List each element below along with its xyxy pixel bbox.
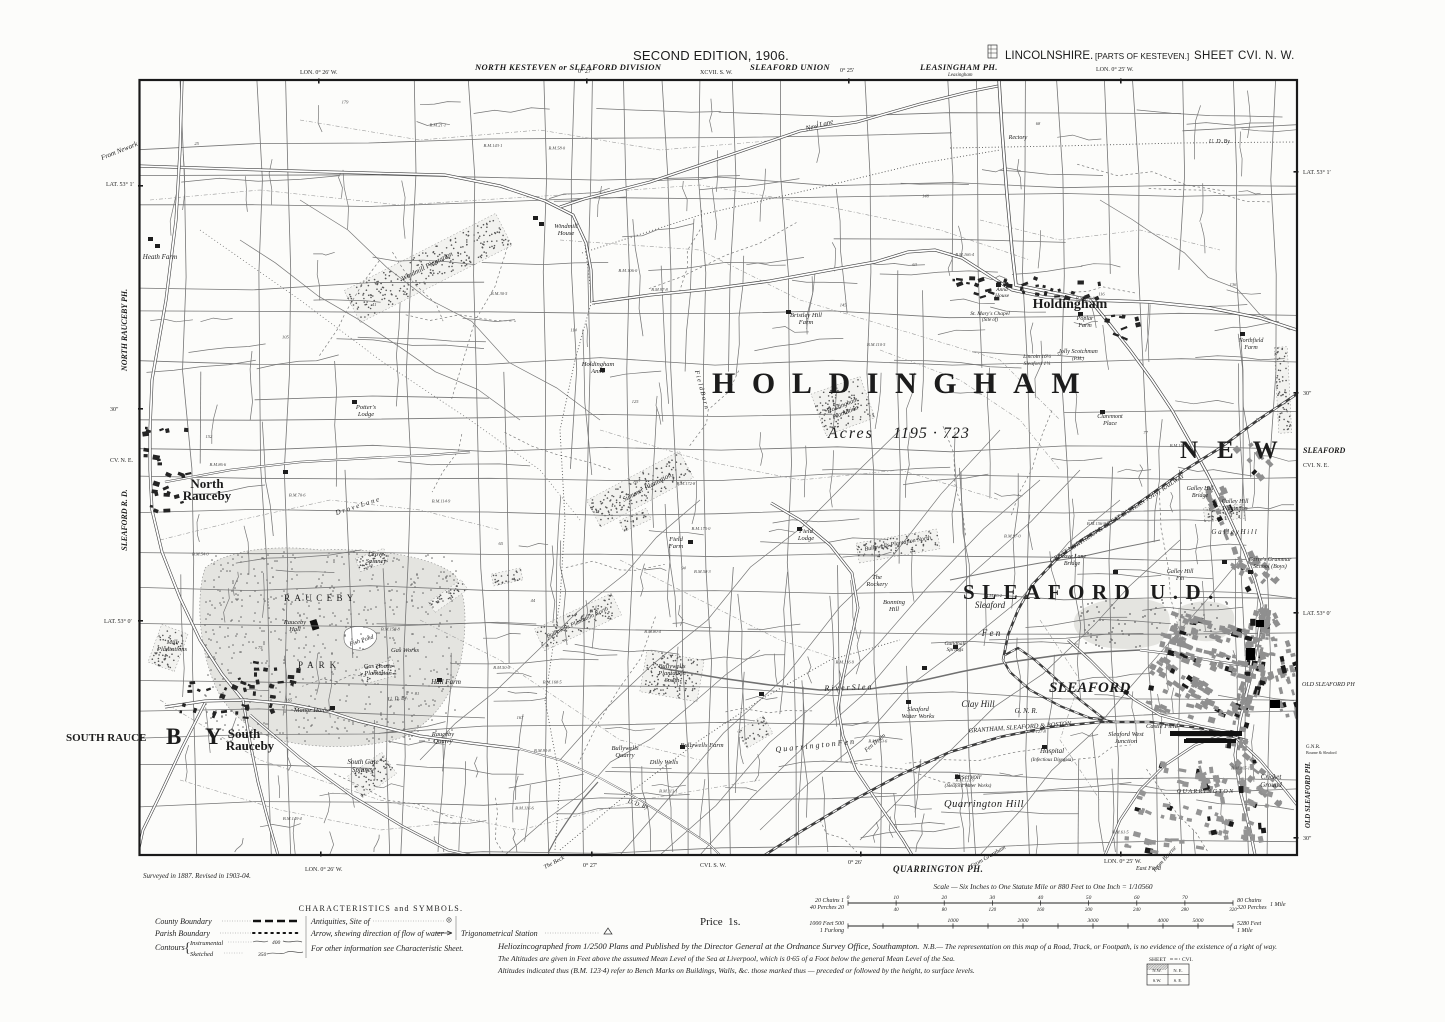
svg-text:LON. 0° 25′ W.: LON. 0° 25′ W.	[1096, 66, 1134, 73]
svg-text:Farm: Farm	[1243, 345, 1258, 351]
svg-text:B.M.110·5: B.M.110·5	[867, 342, 886, 347]
svg-text:Quarrington Hill: Quarrington Hill	[944, 799, 1024, 810]
svg-text:1000: 1000	[948, 918, 959, 924]
svg-text:Bristley Hill: Bristley Hill	[790, 312, 822, 319]
svg-text:Galley Hill: Galley Hill	[1167, 569, 1194, 575]
svg-text:75: 75	[258, 645, 263, 650]
svg-text:B.M.91·8: B.M.91·8	[534, 748, 551, 753]
svg-text:OLD SLEAFORD PH.: OLD SLEAFORD PH.	[1304, 762, 1312, 829]
svg-text:53: 53	[1057, 352, 1062, 357]
svg-text:Farm: Farm	[1077, 323, 1092, 329]
svg-text:Manor House: Manor House	[293, 707, 330, 714]
svg-text:The Altitudes are given in Fee: The Altitudes are given in Feet above th…	[498, 954, 955, 963]
svg-text:B.M.172·8: B.M.172·8	[676, 481, 696, 486]
svg-text:B.M.158·8: B.M.158·8	[381, 627, 401, 632]
svg-text:125: 125	[632, 399, 640, 404]
svg-text:[PARTS OF KESTEVEN.]: [PARTS OF KESTEVEN.]	[1095, 51, 1189, 61]
svg-text:Q U A R R I N G T O N: Q U A R R I N G T O N	[1177, 789, 1234, 795]
svg-text:B.M.116·9: B.M.116·9	[835, 660, 854, 665]
svg-text:Sleaford 1¼: Sleaford 1¼	[1024, 360, 1051, 367]
svg-text:320 Perches: 320 Perches	[1236, 905, 1267, 911]
svg-text:B.M.156·9: B.M.156·9	[1087, 521, 1107, 526]
svg-text:Bourne & Sleaford: Bourne & Sleaford	[1306, 750, 1336, 755]
svg-text:B.M.97·0: B.M.97·0	[1004, 533, 1021, 538]
svg-text:South Gate: South Gate	[347, 758, 378, 766]
svg-text:HOLDINGHAM: HOLDINGHAM	[712, 367, 1096, 400]
svg-text:0° 27′: 0° 27′	[578, 68, 593, 75]
svg-text:68: 68	[1036, 121, 1041, 126]
svg-text:Dilly Wells: Dilly Wells	[649, 759, 679, 766]
svg-text:N.W.: N.W.	[1152, 968, 1161, 973]
svg-text:(P.H.): (P.H.)	[1072, 357, 1084, 362]
svg-text:Surveyed in 1887. Revised i: Surveyed in 1887. Revised in 1903-04.	[143, 872, 251, 880]
svg-text:LAT. 53° 1′: LAT. 53° 1′	[1303, 169, 1331, 176]
svg-text:Springs: Springs	[947, 647, 964, 653]
svg-text:Farm: Farm	[798, 319, 814, 326]
svg-text:S. E.: S. E.	[1174, 978, 1183, 983]
svg-text:Rectory: Rectory	[1008, 135, 1028, 141]
svg-text:Lincoln 16¼: Lincoln 16¼	[1022, 354, 1051, 360]
svg-text:Bridge: Bridge	[1064, 561, 1081, 567]
svg-text:Hall: Hall	[288, 626, 301, 633]
svg-text:152: 152	[206, 434, 214, 439]
svg-text:Spinney: Spinney	[352, 766, 375, 774]
svg-text:Trigonometrical Station: Trigonometrical Station	[461, 929, 538, 938]
svg-text:SOUTH RAUCE: SOUTH RAUCE	[66, 732, 146, 744]
svg-text:Galley Hill: Galley Hill	[1187, 486, 1214, 492]
svg-text:80: 80	[942, 908, 948, 913]
svg-text:B.M.36·2: B.M.36·2	[985, 593, 1002, 598]
svg-text:G. N. R.: G. N. R.	[1015, 707, 1038, 715]
svg-text:Quarry: Quarry	[433, 738, 452, 745]
svg-text:136: 136	[1230, 282, 1238, 287]
svg-text:Hospital: Hospital	[1039, 747, 1064, 755]
svg-text:Rauceby: Rauceby	[183, 488, 232, 503]
svg-text:0: 0	[847, 895, 850, 901]
svg-text:0° 26′: 0° 26′	[848, 859, 863, 866]
svg-text:5000: 5000	[1193, 918, 1204, 924]
svg-text:B.M.58·3: B.M.58·3	[694, 569, 711, 574]
svg-text:B.M.114·9: B.M.114·9	[432, 499, 451, 504]
svg-text:1s.: 1s.	[728, 916, 741, 928]
svg-text:B.M.168·5: B.M.168·5	[543, 679, 563, 684]
svg-text:167: 167	[517, 715, 525, 720]
svg-text:40: 40	[1038, 894, 1044, 901]
svg-text:Rauceby: Rauceby	[283, 619, 306, 626]
svg-text:N.B.— The representation on th: N.B.— The representation on this map of …	[922, 942, 1277, 951]
svg-text:25: 25	[194, 141, 199, 146]
svg-text:Holdingham: Holdingham	[581, 361, 615, 368]
svg-text:30″: 30″	[110, 407, 119, 413]
svg-text:70: 70	[1182, 895, 1188, 901]
svg-text:B.M.54·0: B.M.54·0	[192, 552, 209, 557]
svg-text:120: 120	[989, 908, 997, 913]
svg-text:Plantation: Plantation	[1221, 506, 1247, 512]
svg-text:Acres: Acres	[827, 425, 874, 442]
svg-text:CVI.: CVI.	[1182, 957, 1193, 963]
svg-text:Holdingham: Holdingham	[1033, 297, 1108, 312]
svg-text:B.M.143·1: B.M.143·1	[483, 143, 502, 148]
svg-text:1195 · 723: 1195 · 723	[893, 425, 970, 442]
svg-text:Castle Field: Castle Field	[1146, 723, 1179, 730]
svg-text:Arrow, shewing direction of fl: Arrow, shewing direction of flow of wate…	[310, 929, 445, 938]
svg-text:Cricket: Cricket	[1261, 773, 1283, 781]
svg-text:N. E.: N. E.	[1173, 968, 1182, 973]
svg-text:B.M.116·6: B.M.116·6	[515, 805, 534, 810]
svg-text:B: B	[166, 724, 181, 749]
svg-text:CV. N. E.: CV. N. E.	[110, 458, 134, 464]
svg-text:CVI. N. E.: CVI. N. E.	[1303, 463, 1329, 469]
svg-text:LON. 0° 26′ W.: LON. 0° 26′ W.	[300, 69, 338, 76]
svg-text:Rockery: Rockery	[865, 581, 887, 588]
svg-text:Bonning: Bonning	[883, 599, 906, 606]
svg-text:3000: 3000	[1087, 918, 1099, 924]
svg-text:SLEAFORD R. D.: SLEAFORD R. D.	[120, 489, 129, 550]
svg-text:OLD SLEAFORD PH: OLD SLEAFORD PH	[1302, 682, 1355, 688]
svg-text:SECOND EDITION, 1906.: SECOND EDITION, 1906.	[633, 48, 789, 63]
svg-text:Instrumental: Instrumental	[189, 940, 223, 947]
svg-text:XCVII. S. W.: XCVII. S. W.	[700, 70, 733, 76]
svg-text:B.M.106·0: B.M.106·0	[618, 268, 638, 273]
svg-text:Junction: Junction	[1115, 738, 1137, 745]
svg-text:SHEET: SHEET	[1194, 50, 1234, 62]
svg-text:0° 25′: 0° 25′	[840, 67, 855, 74]
svg-text:30″: 30″	[1303, 391, 1312, 397]
svg-text:Sketched: Sketched	[190, 951, 214, 958]
svg-text:B.M.30·5: B.M.30·5	[491, 291, 508, 296]
svg-text:B.M.70·6: B.M.70·6	[289, 492, 306, 497]
svg-text:Y: Y	[205, 724, 222, 749]
svg-text:B.M.50·0: B.M.50·0	[493, 665, 510, 670]
svg-text:Fm: Fm	[1175, 576, 1185, 582]
svg-text:4000: 4000	[1158, 917, 1169, 924]
svg-text:Clay Hill: Clay Hill	[961, 699, 995, 709]
svg-text:B.M.153·6: B.M.153·6	[868, 738, 888, 743]
svg-text:60: 60	[1134, 895, 1140, 901]
svg-text:LEASINGHAM PH.: LEASINGHAM PH.	[919, 62, 998, 72]
svg-text:Gas House: Gas House	[364, 663, 393, 670]
svg-text:County Boundary: County Boundary	[155, 917, 212, 926]
svg-text:Lodge: Lodge	[357, 411, 374, 418]
svg-text:Place: Place	[1102, 421, 1117, 427]
svg-text:44: 44	[531, 598, 536, 603]
svg-text:Bridge: Bridge	[1192, 493, 1209, 499]
svg-text:Field: Field	[668, 536, 683, 543]
svg-text:30″: 30″	[1303, 836, 1312, 842]
svg-text:Scale — Six Inches to One Stat: Scale — Six Inches to One Statute Mile o…	[933, 882, 1152, 891]
svg-text:B.M.97·8: B.M.97·8	[651, 287, 668, 292]
svg-text:CVI.: CVI.	[1238, 50, 1262, 62]
svg-text:148: 148	[922, 193, 930, 198]
svg-text:400: 400	[272, 939, 281, 946]
svg-text:RAUCEBY: RAUCEBY	[284, 593, 358, 603]
svg-text:Plantation: Plantation	[363, 670, 391, 677]
svg-text:{: {	[184, 941, 191, 956]
svg-text:160: 160	[1037, 908, 1045, 913]
svg-text:B.M.166·4: B.M.166·4	[955, 252, 975, 257]
svg-text:114: 114	[570, 327, 577, 332]
svg-text:280: 280	[1181, 908, 1189, 913]
svg-text:B.M.113·1: B.M.113·1	[659, 788, 678, 793]
svg-text:1 Mile: 1 Mile	[1237, 928, 1253, 934]
svg-text:B.M.175·0: B.M.175·0	[691, 526, 711, 531]
svg-text:63: 63	[912, 262, 917, 267]
svg-text:Heliozincographed from 1/250: Heliozincographed from 1/2500 Plans and …	[497, 941, 919, 951]
svg-text:For other information see Char: For other information see Characteristic…	[310, 944, 463, 953]
svg-text:N. W.: N. W.	[1265, 50, 1295, 62]
svg-text:0° 27′: 0° 27′	[583, 862, 598, 869]
svg-text:B.M.161·3: B.M.161·3	[1170, 443, 1190, 448]
svg-text:Water Works: Water Works	[902, 713, 935, 720]
svg-text:U. D. By.: U. D. By.	[1209, 139, 1231, 145]
svg-text:200: 200	[1085, 908, 1093, 913]
svg-text:Leasingham: Leasingham	[947, 73, 973, 78]
svg-text:LAT. 53° 0′: LAT. 53° 0′	[1303, 610, 1331, 617]
svg-text:Drove: Drove	[367, 551, 384, 558]
svg-text:94: 94	[681, 565, 686, 570]
svg-text:Gas Works: Gas Works	[391, 647, 420, 654]
svg-text:Price: Price	[700, 916, 723, 928]
svg-text:Bullywells Farm: Bullywells Farm	[680, 742, 723, 749]
svg-text:Parish Boundary: Parish Boundary	[154, 929, 210, 938]
svg-text:B.M.21·1: B.M.21·1	[430, 123, 447, 128]
svg-text:116: 116	[1098, 291, 1105, 296]
svg-text:Altitudes indicated thus (B.M.: Altitudes indicated thus (B.M. 123·4) re…	[497, 966, 975, 975]
svg-text:NORTH RAUCEBY PH.: NORTH RAUCEBY PH.	[120, 289, 129, 372]
svg-text:81: 81	[415, 691, 420, 696]
svg-text:B.M.172·6: B.M.172·6	[1076, 295, 1096, 300]
svg-text:B.M.86·6: B.M.86·6	[209, 462, 226, 467]
svg-text:Rauceby: Rauceby	[226, 738, 275, 753]
svg-text:Hill: Hill	[888, 606, 899, 613]
svg-text:5280 Feet: 5280 Feet	[1237, 921, 1261, 927]
svg-text:(Site of): (Site of)	[982, 318, 998, 323]
svg-text:B.M.58·0: B.M.58·0	[548, 145, 565, 150]
svg-text:40: 40	[894, 908, 900, 913]
svg-text:House: House	[994, 293, 1010, 299]
svg-text:(Infectious Diseases): (Infectious Diseases)	[1031, 758, 1073, 763]
svg-text:House: House	[557, 230, 575, 237]
svg-text:20: 20	[942, 895, 948, 901]
svg-text:S.W.: S.W.	[1153, 978, 1162, 983]
svg-text:R i v e r S l e a: R i v e r S l e a	[823, 682, 871, 693]
svg-text:SLEAFORD: SLEAFORD	[1049, 680, 1131, 696]
svg-text:NORTH KESTEVEN or SLEAFORD DIV: NORTH KESTEVEN or SLEAFORD DIVISION	[474, 62, 662, 72]
svg-text:LAT. 53° 0′: LAT. 53° 0′	[104, 618, 132, 625]
svg-text:1 Mile: 1 Mile	[1270, 902, 1286, 908]
svg-text:89: 89	[633, 480, 638, 485]
svg-text:350: 350	[257, 952, 267, 958]
svg-text:St. Mary's Chapel: St. Mary's Chapel	[970, 311, 1010, 317]
svg-text:NEW: NEW	[1180, 437, 1297, 464]
svg-text:Plantation: Plantation	[657, 670, 685, 677]
svg-text:Hall Farm: Hall Farm	[430, 678, 461, 686]
svg-text:Anna: Anna	[590, 368, 605, 375]
svg-text:50: 50	[1086, 895, 1092, 901]
svg-text:Mill: Mill	[166, 639, 178, 646]
svg-text:South: South	[665, 677, 680, 684]
svg-text:B.M.121·9: B.M.121·9	[956, 778, 976, 783]
svg-text:Contours: Contours	[155, 943, 185, 952]
svg-text:Antiquities, Site of: Antiquities, Site of	[310, 917, 372, 926]
svg-text:40 Perches 20: 40 Perches 20	[810, 904, 844, 911]
svg-text:76: 76	[1256, 417, 1261, 422]
svg-text:10: 10	[893, 895, 899, 901]
svg-text:20 Chains 1: 20 Chains 1	[815, 898, 844, 904]
svg-text:LON. 0° 25′ W.: LON. 0° 25′ W.	[1104, 858, 1142, 865]
svg-text:Bullywells: Bullywells	[658, 663, 686, 670]
svg-text:Sleaford West: Sleaford West	[1108, 731, 1144, 738]
svg-text:Galley Hill: Galley Hill	[1222, 499, 1249, 505]
svg-text:Bullywells: Bullywells	[611, 745, 639, 752]
svg-text:LON. 0° 26′ W.: LON. 0° 26′ W.	[305, 866, 343, 873]
svg-text:Windmill: Windmill	[554, 223, 578, 230]
svg-text:Poplar: Poplar	[1076, 316, 1094, 322]
svg-text:Lodge: Lodge	[797, 535, 814, 542]
svg-text:1 Furlong: 1 Furlong	[820, 928, 844, 934]
svg-text:77: 77	[1143, 430, 1148, 435]
svg-text:240: 240	[1133, 908, 1141, 913]
svg-text:105: 105	[282, 334, 290, 339]
svg-text:B.M.127·8: B.M.127·8	[1027, 729, 1047, 734]
svg-text:Carre's Grammar: Carre's Grammar	[1249, 557, 1293, 563]
svg-text:Rauceby: Rauceby	[431, 731, 454, 738]
svg-text:LAT. 53° 1′: LAT. 53° 1′	[106, 181, 134, 188]
svg-text:Field: Field	[798, 528, 813, 535]
svg-text:CHARACTERISTICS and SYMBOLS.: CHARACTERISTICS and SYMBOLS.	[299, 904, 464, 913]
svg-text:1000 Feet 500: 1000 Feet 500	[809, 921, 844, 927]
svg-text:B.M.165·1: B.M.165·1	[1231, 765, 1250, 770]
svg-text:41: 41	[372, 302, 377, 307]
svg-text:Claremont: Claremont	[1097, 414, 1123, 420]
svg-text:SLEAFORD UNION: SLEAFORD UNION	[750, 62, 830, 72]
svg-text:2000: 2000	[1018, 918, 1029, 924]
svg-text:Heath Farm: Heath Farm	[142, 253, 177, 261]
svg-text:30: 30	[989, 895, 996, 901]
svg-text:G a l l e y H i l l: G a l l e y H i l l	[1211, 528, 1256, 536]
svg-text:Potter's: Potter's	[355, 404, 377, 411]
svg-text:65: 65	[498, 541, 503, 546]
svg-text:Quarry: Quarry	[615, 752, 634, 759]
svg-text:CVI. S. W.: CVI. S. W.	[700, 863, 727, 869]
svg-text:School (Boys): School (Boys)	[1253, 563, 1287, 570]
svg-text:Ground: Ground	[1260, 781, 1282, 789]
svg-text:PARK: PARK	[298, 660, 341, 670]
svg-text:Sleaford: Sleaford	[907, 706, 930, 713]
svg-text:165: 165	[285, 698, 293, 703]
svg-text:F e n: F e n	[981, 628, 1001, 638]
svg-text:Jolly Scotchman: Jolly Scotchman	[1058, 349, 1098, 355]
svg-text:179: 179	[342, 99, 350, 104]
svg-text:B.M.80·4: B.M.80·4	[644, 629, 661, 634]
svg-text:Spinney: Spinney	[366, 558, 387, 565]
svg-text:80 Chains: 80 Chains	[1237, 898, 1262, 904]
svg-text:145: 145	[840, 302, 848, 307]
svg-text:Northfield: Northfield	[1238, 337, 1265, 344]
svg-text:SLEAFORD: SLEAFORD	[1303, 446, 1345, 455]
svg-text:Sleaford: Sleaford	[975, 600, 1006, 610]
svg-text:B.M.149·4: B.M.149·4	[283, 816, 303, 821]
svg-text:Farm: Farm	[668, 543, 684, 550]
svg-text:LINCOLNSHIRE.: LINCOLNSHIRE.	[1005, 50, 1093, 62]
svg-text:The: The	[872, 574, 882, 581]
svg-text:SHEET: SHEET	[1149, 957, 1167, 963]
svg-text:320: 320	[1229, 908, 1237, 913]
svg-text:Plantations: Plantations	[156, 646, 187, 653]
svg-text:(Sleaford Water Works): (Sleaford Water Works)	[945, 784, 992, 789]
svg-text:B.M.61·5: B.M.61·5	[1112, 829, 1129, 834]
